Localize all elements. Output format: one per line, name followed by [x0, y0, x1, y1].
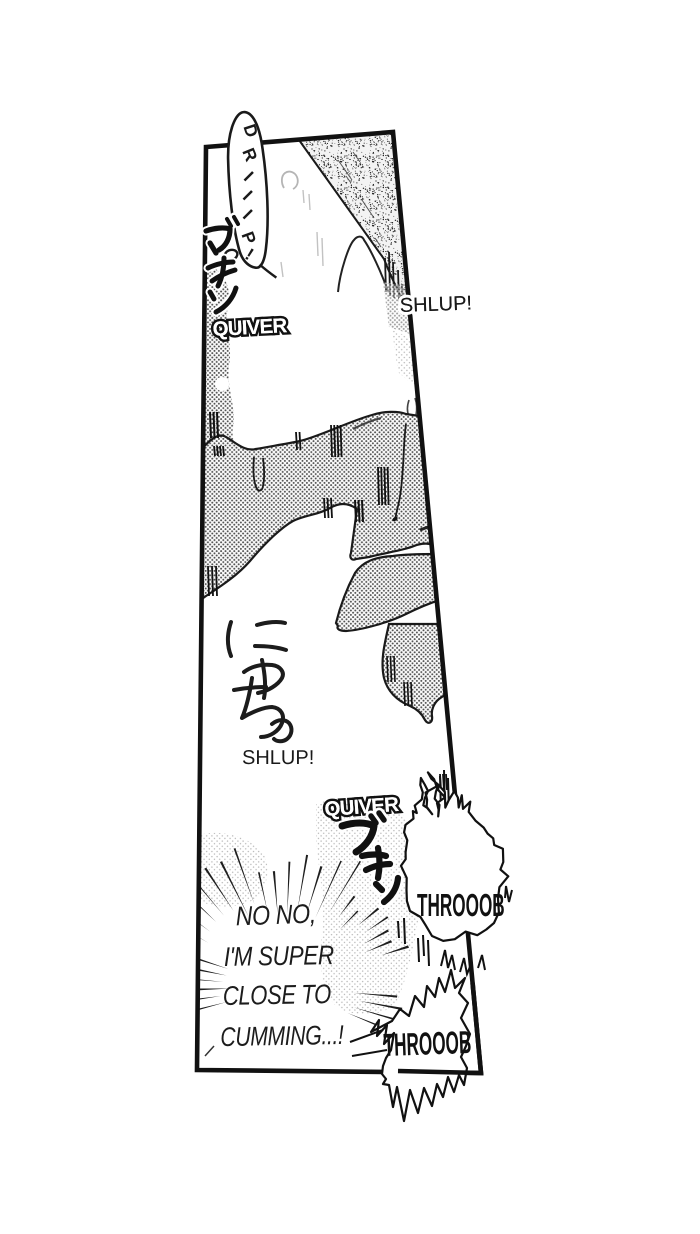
svg-text:NO NO,: NO NO,	[235, 899, 316, 932]
svg-text:SHLUP!: SHLUP!	[242, 747, 314, 769]
svg-text:THROOOB: THROOOB	[383, 1024, 472, 1063]
svg-text:QUIVER: QUIVER	[212, 314, 288, 341]
svg-text:I'M SUPER: I'M SUPER	[224, 940, 335, 972]
svg-text:CLOSE TO: CLOSE TO	[223, 979, 332, 1011]
svg-text:CUMMING...!: CUMMING...!	[220, 1020, 344, 1052]
svg-text:THROOOB: THROOOB	[417, 887, 505, 923]
svg-text:SHLUP!: SHLUP!	[399, 292, 472, 317]
